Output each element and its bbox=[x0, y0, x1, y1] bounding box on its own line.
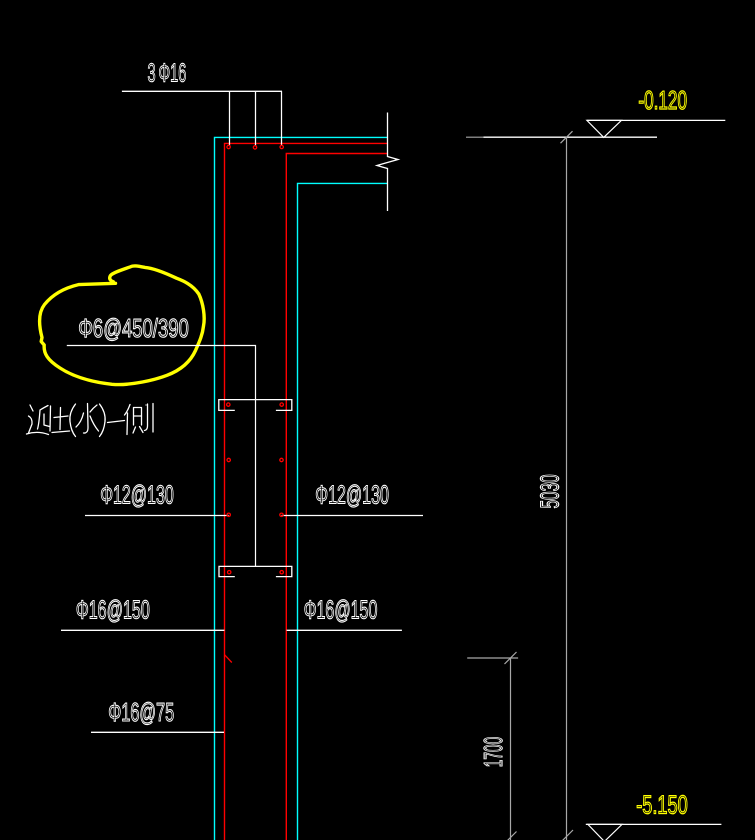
svg-text:-0.120: -0.120 bbox=[638, 85, 687, 115]
svg-text:Φ12@130: Φ12@130 bbox=[315, 480, 389, 510]
svg-text:Φ16@150: Φ16@150 bbox=[304, 595, 378, 625]
svg-text:1700: 1700 bbox=[478, 737, 508, 767]
svg-text:-5.150: -5.150 bbox=[636, 790, 688, 820]
svg-text:Φ6@450/390: Φ6@450/390 bbox=[78, 313, 189, 343]
svg-text:Φ12@130: Φ12@130 bbox=[100, 480, 174, 510]
svg-text:3 Φ16: 3 Φ16 bbox=[148, 58, 187, 88]
svg-text:Φ16@150: Φ16@150 bbox=[76, 595, 150, 625]
svg-text:5030: 5030 bbox=[534, 474, 564, 508]
svg-text:Φ16@75: Φ16@75 bbox=[108, 697, 174, 727]
